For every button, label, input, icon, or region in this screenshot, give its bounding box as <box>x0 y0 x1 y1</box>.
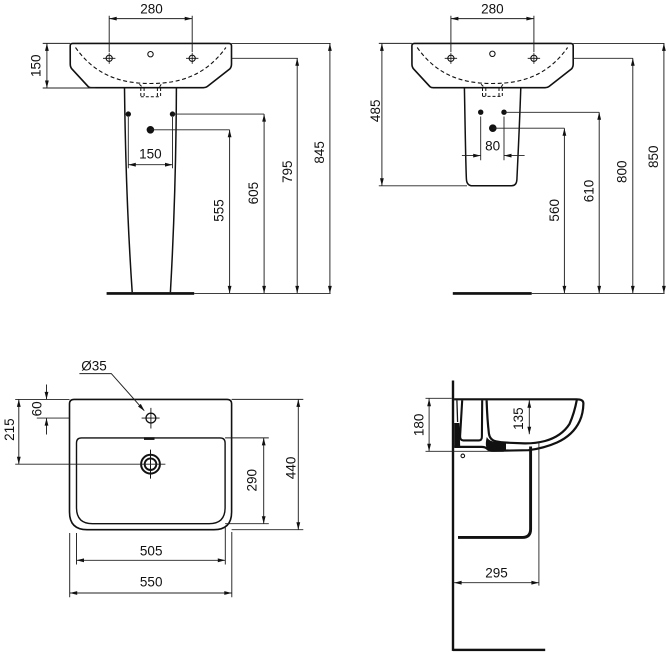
svg-text:795: 795 <box>280 160 295 183</box>
svg-text:845: 845 <box>312 141 327 164</box>
svg-text:550: 550 <box>140 575 163 590</box>
svg-text:60: 60 <box>29 401 44 416</box>
svg-text:290: 290 <box>245 469 260 492</box>
svg-text:150: 150 <box>28 54 43 77</box>
svg-text:80: 80 <box>485 139 500 154</box>
svg-text:180: 180 <box>412 414 427 437</box>
svg-text:150: 150 <box>139 146 162 161</box>
svg-text:850: 850 <box>646 145 661 168</box>
svg-text:215: 215 <box>2 418 17 441</box>
svg-text:485: 485 <box>368 100 383 123</box>
svg-text:135: 135 <box>511 407 526 430</box>
svg-text:555: 555 <box>212 199 227 222</box>
svg-text:440: 440 <box>283 457 298 480</box>
svg-text:Ø35: Ø35 <box>81 359 107 374</box>
svg-text:280: 280 <box>481 1 504 16</box>
svg-text:295: 295 <box>485 565 508 580</box>
svg-text:800: 800 <box>615 160 630 183</box>
svg-text:610: 610 <box>581 180 596 203</box>
svg-text:280: 280 <box>140 1 163 16</box>
svg-text:505: 505 <box>140 544 163 559</box>
svg-text:560: 560 <box>547 199 562 222</box>
svg-text:605: 605 <box>246 182 261 205</box>
